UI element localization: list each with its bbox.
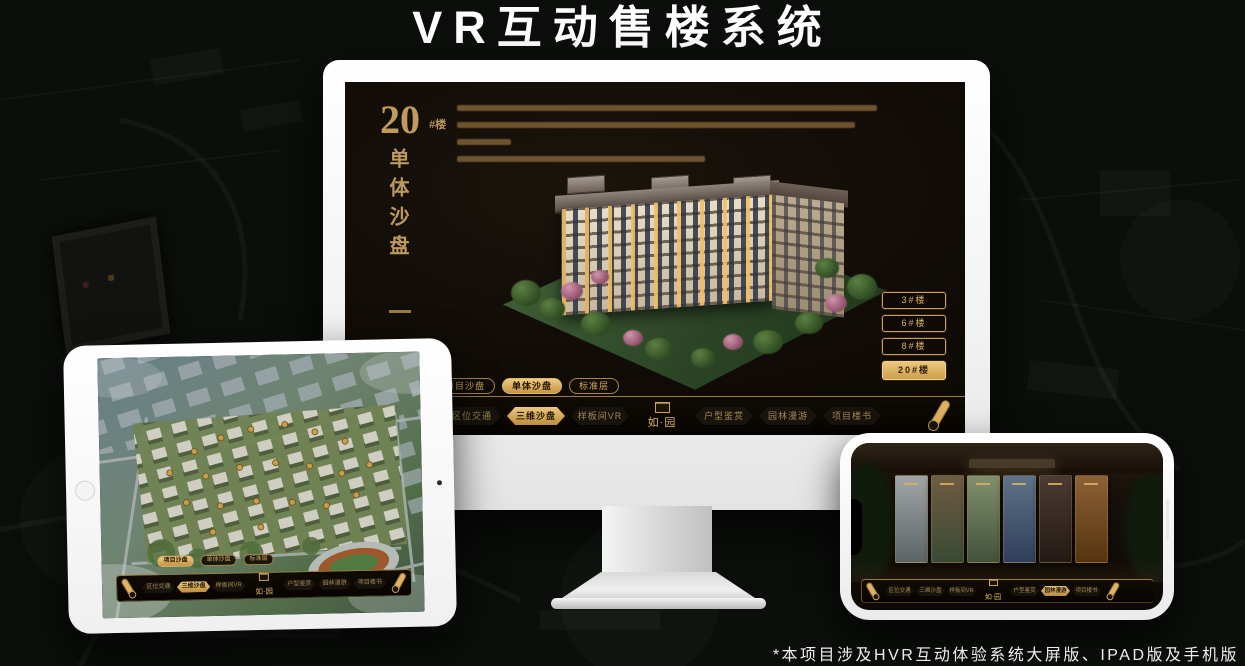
description-text-line [457, 139, 511, 145]
nav-item-project-book[interactable]: 项目楼书 [353, 577, 386, 589]
blossom-tree [591, 270, 609, 284]
floor-button-8[interactable]: 8#楼 [882, 338, 946, 355]
tab-single-sandbox[interactable]: 单体沙盘 [200, 555, 236, 567]
blossom-tree [723, 334, 743, 350]
building-number: 20 [380, 96, 420, 143]
building-facade [561, 195, 773, 316]
scroll-icon[interactable] [922, 398, 956, 434]
phone-screen: 区位交通 三维沙盘 样板间VR 如·园 户型鉴赏 园林漫游 项目楼书 [851, 443, 1163, 610]
nav-item-project-book[interactable]: 项目楼书 [823, 407, 881, 425]
main-navbar: 区位交通 三维沙盘 样板间VR 如·园 户型鉴赏 园林漫游 项目楼书 [433, 396, 965, 435]
tree [795, 312, 823, 334]
monitor-stand-base [551, 598, 766, 609]
brand-logo-text: 如·园 [985, 593, 1001, 601]
camera-dot [437, 480, 442, 485]
floor-button-6[interactable]: 6#楼 [882, 315, 946, 332]
brand-logo[interactable]: 如·园 [246, 572, 282, 599]
tab-single-sandbox[interactable]: 单体沙盘 [502, 378, 562, 394]
phone-bezel-detail [1166, 499, 1169, 541]
nav-item-location-traffic[interactable]: 区位交通 [885, 586, 914, 596]
description-text-line [457, 105, 877, 111]
floor-button-stack: 3#楼 6#楼 8#楼 20#楼 [881, 292, 947, 386]
tablet-device: 项目沙盘 单体沙盘 标准层 区位交通 三维沙盘 样板间VR 如·园 [63, 338, 457, 634]
nav-item-garden-tour[interactable]: 园林漫游 [1041, 586, 1070, 596]
scene-card[interactable] [1003, 475, 1036, 563]
brand-logo-text: 如·园 [255, 586, 273, 595]
seal-icon [655, 402, 670, 413]
nav-item-3d-sandbox[interactable]: 三维沙盘 [507, 407, 565, 425]
nav-item-garden-tour[interactable]: 园林漫游 [759, 407, 817, 425]
sandbox-tabs: 项目沙盘 单体沙盘 标准层 [435, 378, 619, 394]
tab-project-sandbox[interactable]: 项目沙盘 [157, 555, 193, 567]
nav-item-model-room-vr[interactable]: 样板间VR [571, 407, 629, 425]
marketing-composite: { "page": { "title": "VR互动售楼系统", "footno… [0, 0, 1245, 666]
nav-item-location-traffic[interactable]: 区位交通 [142, 582, 175, 594]
blossom-tree [623, 330, 643, 346]
roof-cap [567, 175, 605, 195]
nav-item-garden-tour[interactable]: 园林漫游 [318, 578, 351, 590]
nav-item-model-room-vr[interactable]: 样板间VR [212, 580, 245, 592]
tree [511, 280, 541, 306]
blossom-tree [825, 294, 847, 312]
model-building [561, 180, 851, 330]
tree [581, 312, 611, 336]
scene-card[interactable] [931, 475, 964, 563]
page-title: VR互动售楼系统 [0, 0, 1245, 56]
brand-logo[interactable]: 如·园 [632, 402, 692, 431]
blossom-tree [561, 282, 583, 300]
scene-card[interactable] [1039, 475, 1072, 563]
phone-device: 区位交通 三维沙盘 样板间VR 如·园 户型鉴赏 园林漫游 项目楼书 [840, 433, 1174, 620]
footnote-text: *本项目涉及HVR互动体验系统大屏版、IPAD版及手机版 [773, 641, 1239, 665]
scroll-icon[interactable] [389, 570, 409, 594]
tree [539, 298, 565, 320]
scene-card[interactable] [967, 475, 1000, 563]
section-title-vertical: 单体沙盘 [383, 148, 412, 298]
building-number-suffix: #楼 [429, 116, 446, 132]
seal-icon [259, 572, 269, 580]
floor-button-3[interactable]: 3#楼 [882, 292, 946, 309]
brand-logo[interactable]: 如·园 [977, 579, 1009, 604]
ceiling-lamp [969, 459, 1055, 468]
interior-ceiling [851, 443, 1163, 473]
seal-icon [989, 579, 998, 586]
scroll-icon[interactable] [119, 576, 139, 600]
nav-item-floorplan[interactable]: 户型鉴赏 [283, 579, 316, 591]
nav-item-floorplan[interactable]: 户型鉴赏 [695, 407, 753, 425]
tree [645, 338, 673, 360]
brand-logo-text: 如·园 [648, 417, 677, 429]
background-plaque [52, 216, 171, 353]
home-button[interactable] [75, 480, 95, 500]
nav-item-3d-sandbox[interactable]: 三维沙盘 [916, 586, 945, 596]
scene-card[interactable] [895, 475, 928, 563]
nav-item-project-book[interactable]: 项目楼书 [1072, 586, 1101, 596]
tree [815, 258, 839, 278]
scene-card[interactable] [1075, 475, 1108, 563]
building-3d-model[interactable] [495, 162, 895, 392]
nav-item-model-room-vr[interactable]: 样板间VR [947, 586, 976, 596]
monitor-stand [602, 506, 712, 580]
nav-item-3d-sandbox[interactable]: 三维沙盘 [177, 581, 210, 593]
phone-notch [851, 499, 862, 555]
nav-item-floorplan[interactable]: 户型鉴赏 [1010, 586, 1039, 596]
scroll-icon[interactable] [1104, 581, 1122, 602]
tree [753, 330, 783, 354]
tab-standard-floor[interactable]: 标准层 [569, 378, 619, 394]
description-text-line [457, 122, 855, 128]
floor-button-20[interactable]: 20#楼 [882, 361, 946, 380]
tablet-screen: 项目沙盘 单体沙盘 标准层 区位交通 三维沙盘 样板间VR 如·园 [97, 352, 424, 619]
tree [691, 348, 715, 368]
title-underline [389, 310, 411, 313]
tab-standard-floor[interactable]: 标准层 [243, 554, 273, 566]
phone-navbar: 区位交通 三维沙盘 样板间VR 如·园 户型鉴赏 园林漫游 项目楼书 [861, 579, 1154, 603]
tree [847, 274, 877, 300]
scroll-icon[interactable] [864, 581, 882, 602]
